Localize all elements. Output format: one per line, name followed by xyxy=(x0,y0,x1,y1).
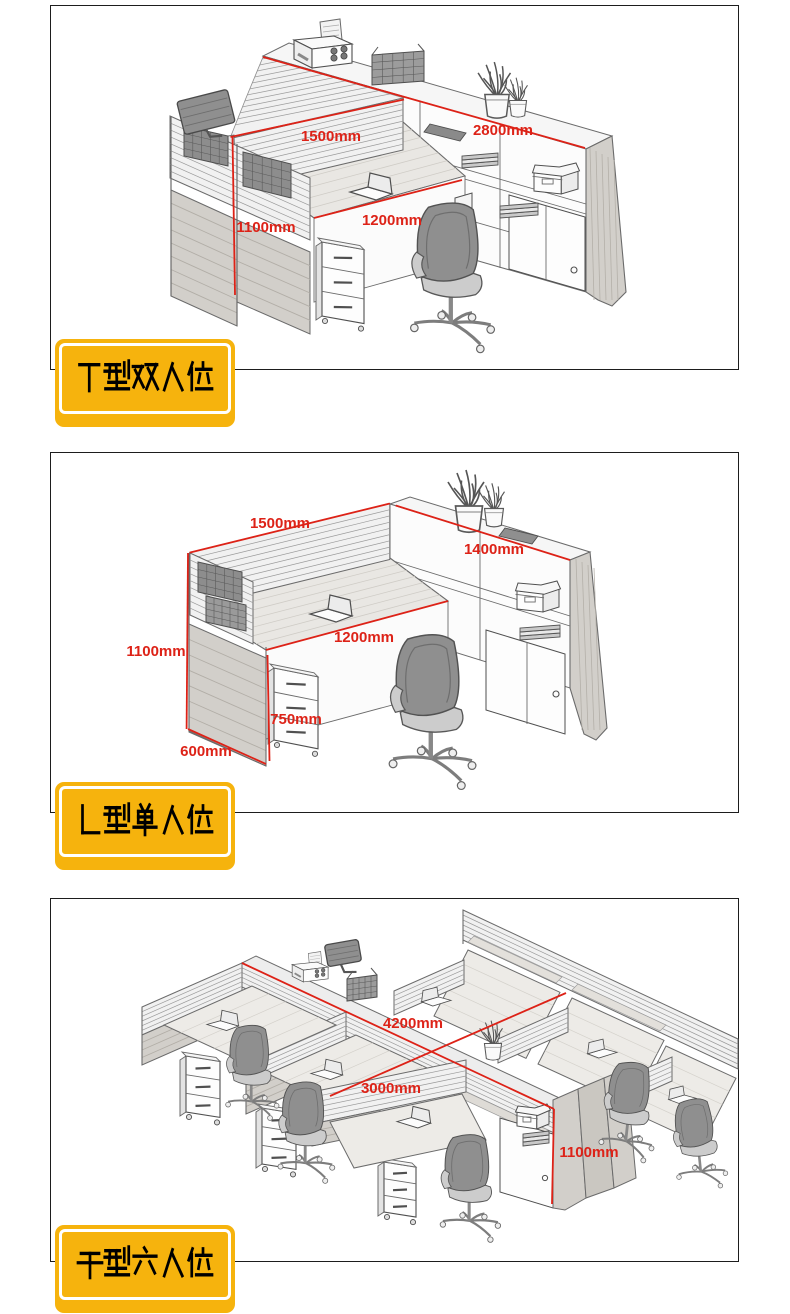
svg-text:600mm: 600mm xyxy=(180,743,232,760)
svg-text:1500mm: 1500mm xyxy=(250,515,310,532)
svg-text:1400mm: 1400mm xyxy=(464,541,524,558)
svg-text:1100mm: 1100mm xyxy=(236,219,295,236)
svg-text:750mm: 750mm xyxy=(270,711,322,728)
svg-text:1500mm: 1500mm xyxy=(301,128,361,145)
svg-text:1200mm: 1200mm xyxy=(362,212,422,229)
svg-text:2800mm: 2800mm xyxy=(473,122,533,139)
svg-text:3000mm: 3000mm xyxy=(361,1080,421,1097)
svg-text:1200mm: 1200mm xyxy=(334,629,394,646)
svg-text:4200mm: 4200mm xyxy=(383,1015,443,1032)
svg-text:1100mm: 1100mm xyxy=(126,643,185,660)
svg-text:1100mm: 1100mm xyxy=(559,1144,618,1161)
